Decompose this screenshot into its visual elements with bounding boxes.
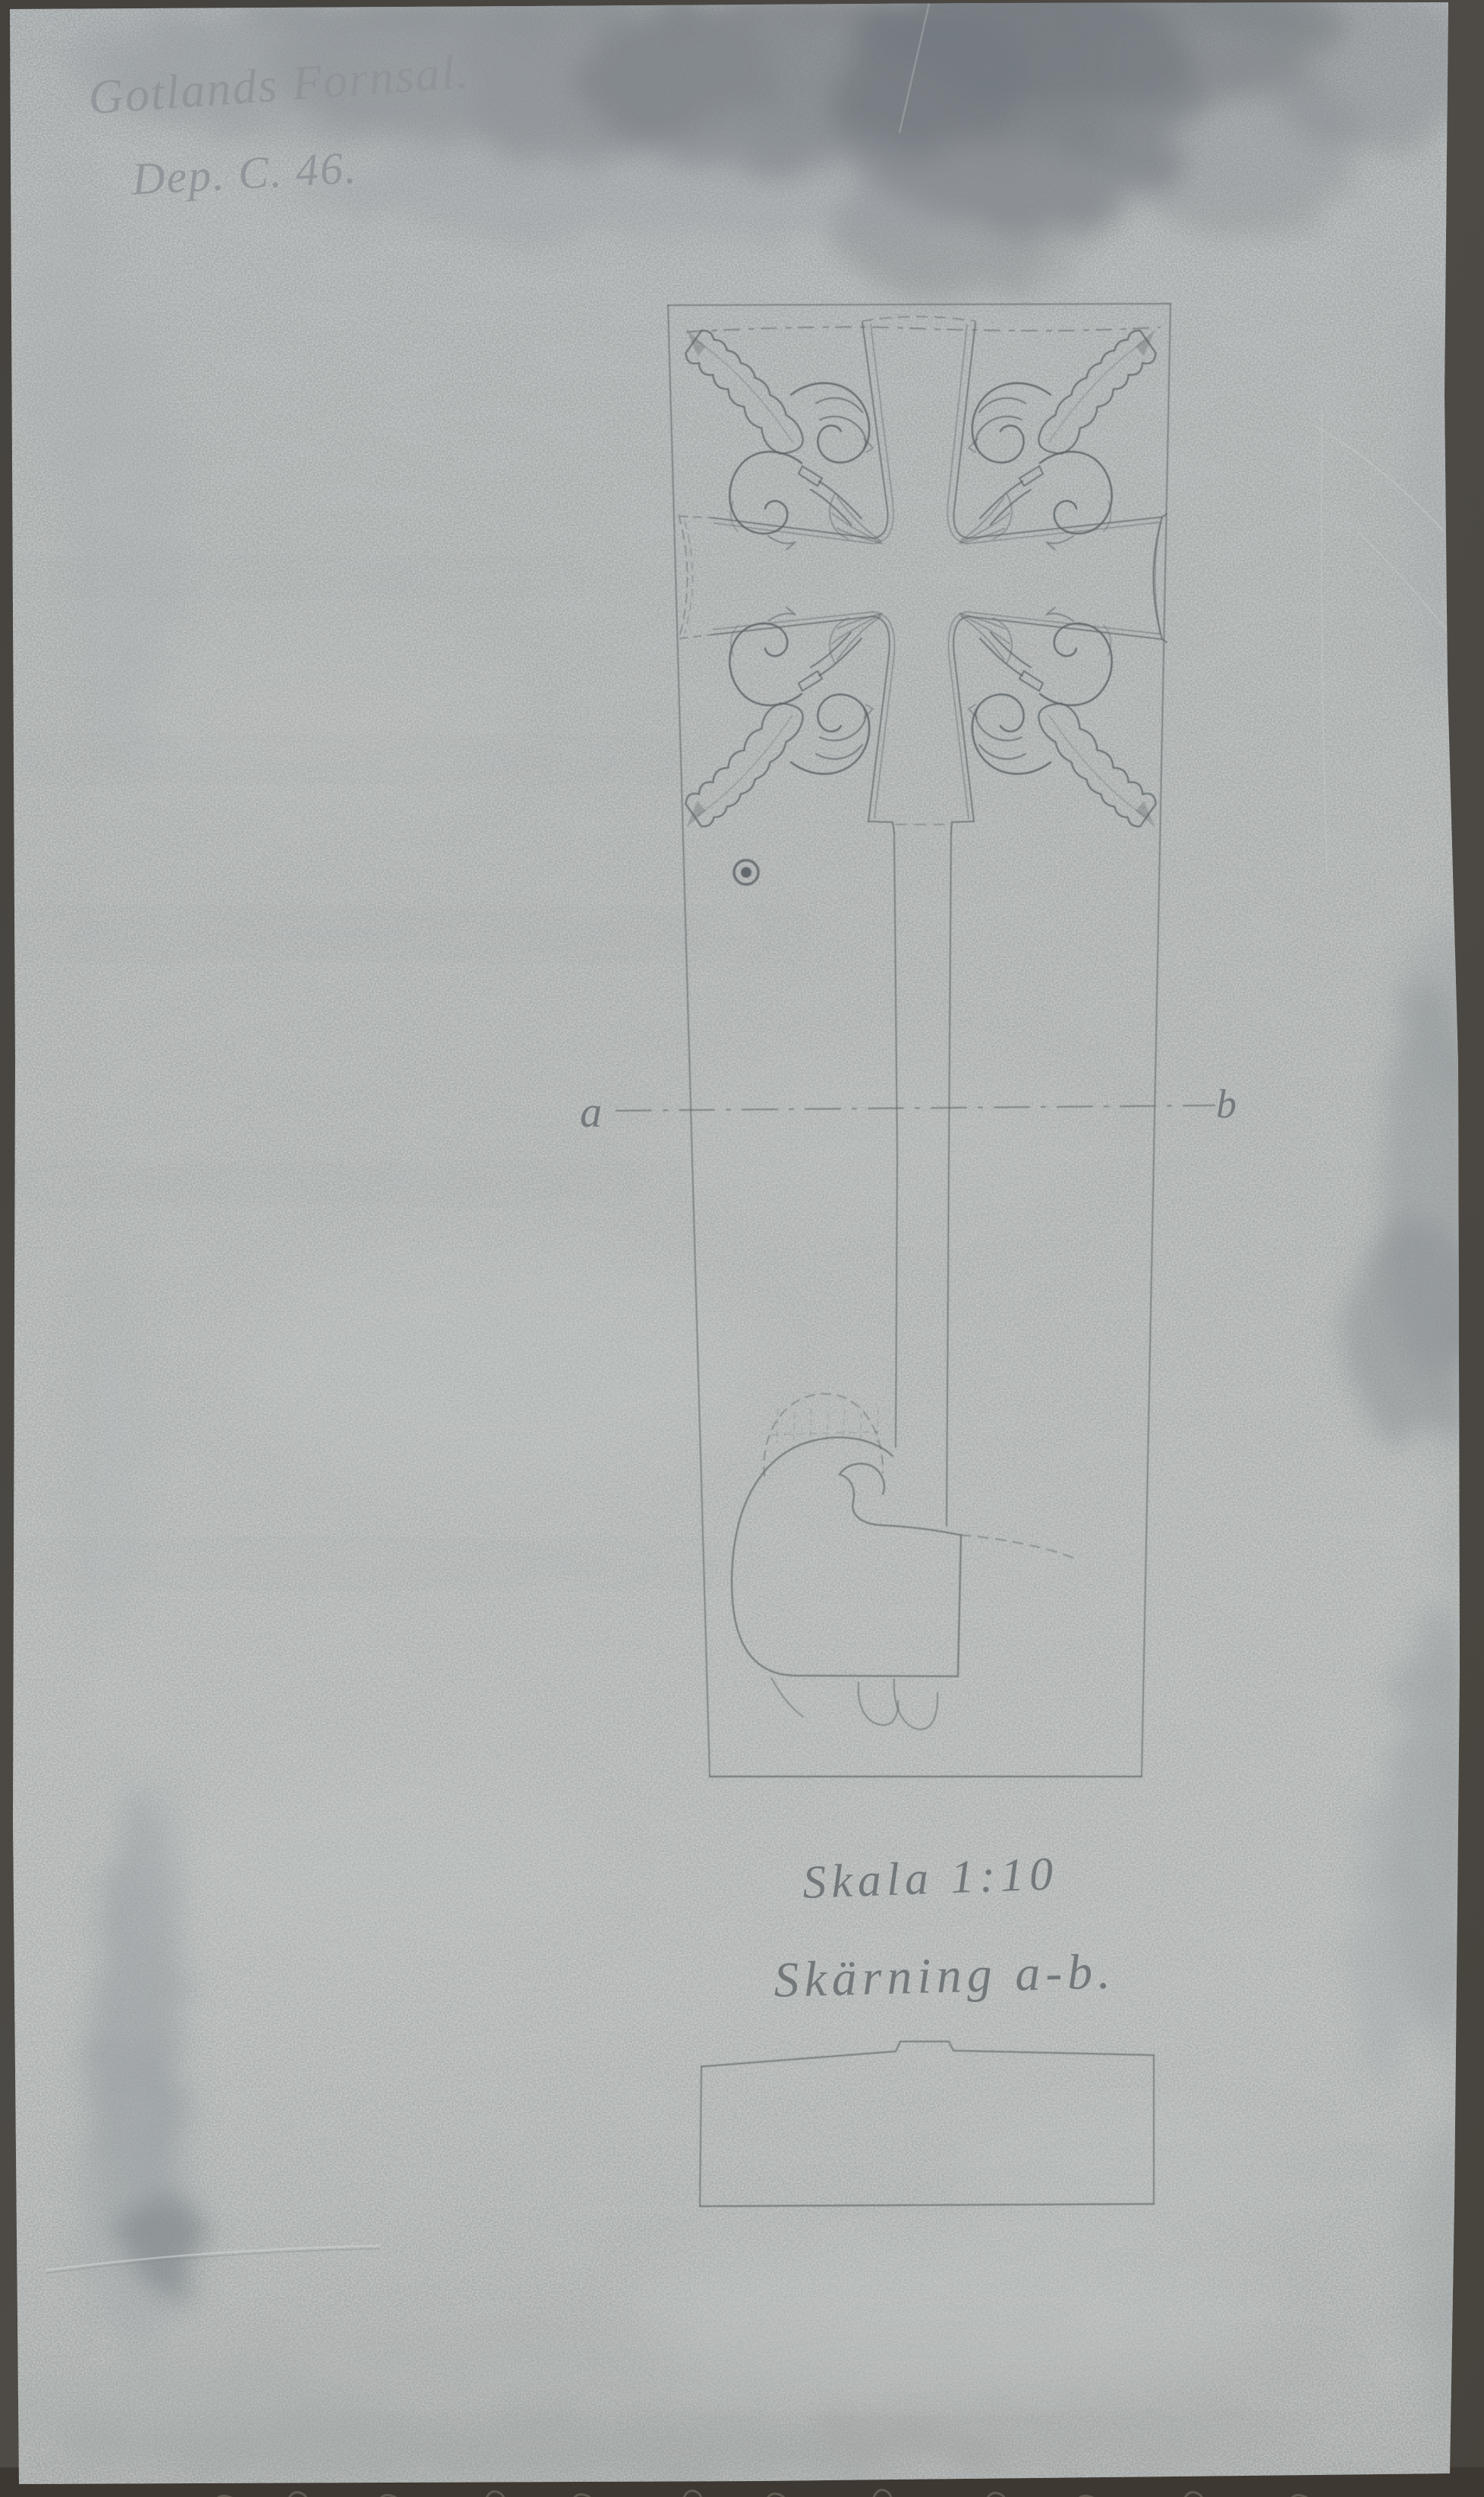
svg-text:b: b (1216, 1081, 1237, 1127)
svg-text:Skärning a-b.: Skärning a-b. (773, 1944, 1116, 2008)
svg-text:Skala 1:10: Skala 1:10 (802, 1848, 1059, 1909)
svg-text:a: a (580, 1087, 602, 1137)
